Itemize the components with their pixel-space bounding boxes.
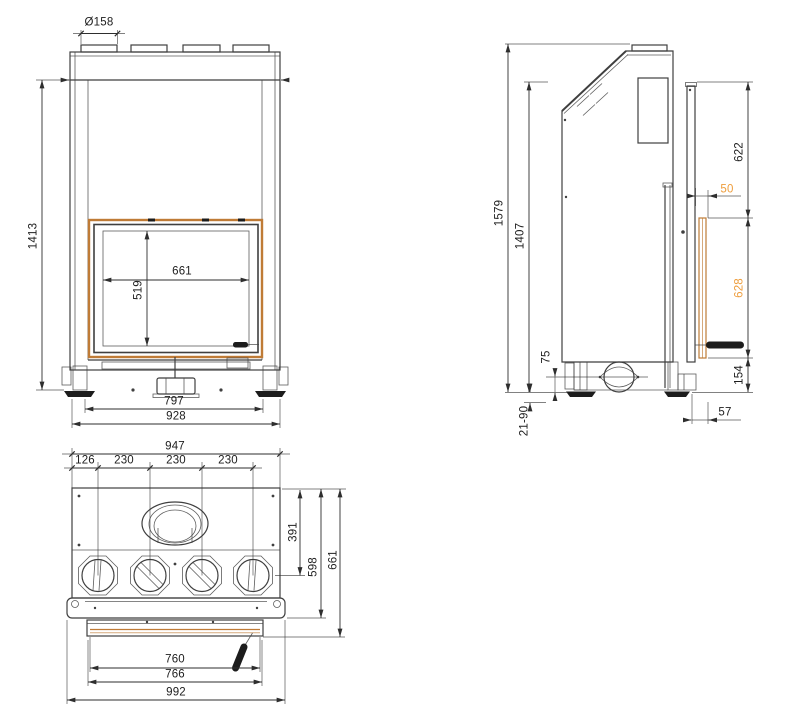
dim-front-overall-height: 1413	[28, 223, 40, 249]
door-frame	[89, 220, 262, 357]
dim-top-outlet-spacing-1: 230	[114, 455, 134, 467]
door-handle-front	[233, 342, 248, 348]
dim-side-lower-section: 154	[734, 365, 746, 385]
flue-collar	[142, 502, 208, 545]
dim-top-glass-opening-width: 760	[165, 654, 185, 666]
dim-side-door-glass-height: 628	[734, 278, 746, 298]
top-view	[62, 448, 346, 704]
dim-front-glass-width: 661	[172, 266, 192, 278]
front-body	[70, 52, 280, 370]
door-plan	[87, 620, 263, 636]
flue-stub	[233, 45, 269, 52]
dim-side-upper-section: 622	[734, 142, 746, 162]
dim-top-body-depth: 598	[308, 557, 320, 577]
side-body	[562, 51, 673, 362]
front-view	[36, 30, 288, 428]
door-handle-plan	[236, 647, 245, 668]
dim-front-flue-diameter: Ø158	[85, 17, 114, 29]
technical-drawing-canvas: Ø158 1413 661 519 797 928 1579 1407 622 …	[0, 0, 790, 722]
dim-top-frame-depth: 661	[328, 550, 340, 570]
dim-front-feet-span: 797	[164, 396, 184, 408]
flue-stub	[183, 45, 220, 52]
dim-side-frame-gap: 50	[720, 184, 733, 196]
foot-pad	[64, 391, 95, 397]
dim-top-edge-to-first-outlet: 126	[75, 455, 95, 467]
dim-top-body-width: 947	[165, 441, 185, 453]
dim-side-front-depth: 57	[718, 407, 731, 419]
dim-front-glass-height: 519	[133, 280, 145, 300]
foot-pad	[255, 391, 286, 397]
pedestal	[157, 378, 195, 394]
dim-top-flue-axis-depth: 391	[288, 522, 300, 542]
door-handle-side	[706, 342, 744, 349]
flue-stub	[81, 45, 117, 52]
dim-side-frame-height: 1407	[515, 223, 527, 249]
dim-side-total-height: 1579	[494, 200, 506, 226]
foot-pad	[664, 392, 690, 398]
dim-front-overall-width: 928	[166, 411, 186, 423]
dim-side-intake-axis-height: 75	[541, 350, 553, 363]
side-view	[505, 44, 753, 424]
dim-side-foot-adjust-range: 21-90	[519, 406, 531, 436]
flue-stub-side	[632, 45, 667, 51]
foot-pad	[566, 392, 596, 398]
flue-stub	[131, 45, 167, 52]
dim-top-frame-width: 992	[166, 687, 186, 699]
glass-pane	[103, 231, 249, 346]
dim-top-door-width: 766	[165, 669, 185, 681]
dim-top-outlet-spacing-3: 230	[218, 455, 238, 467]
door-column	[687, 86, 695, 362]
dim-top-outlet-spacing-2: 230	[166, 455, 186, 467]
base-plate	[67, 598, 285, 618]
drawing-linework	[0, 0, 790, 722]
side-box	[638, 78, 668, 143]
